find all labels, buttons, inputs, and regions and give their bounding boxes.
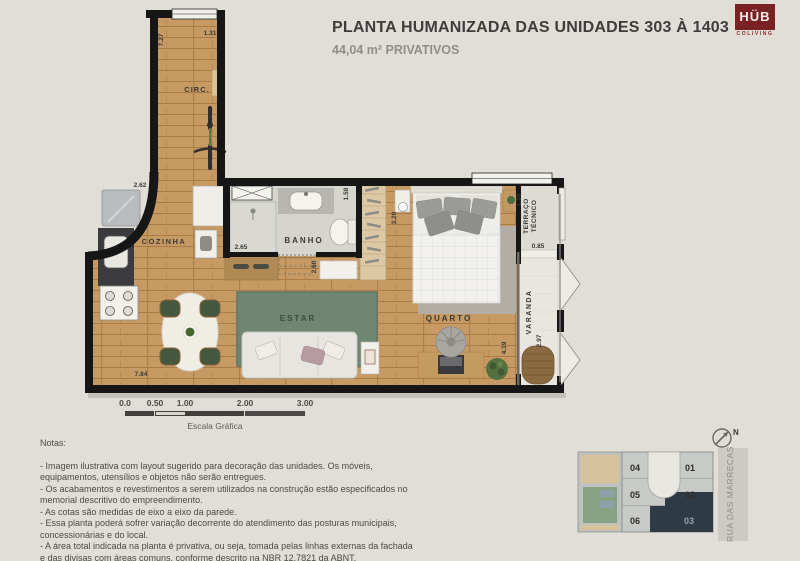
- keyplan-building: 04 01 05 02 06 03: [622, 452, 713, 532]
- bed-blanket: [413, 234, 500, 303]
- notes: Notas: - Imagem ilustrativa com layout s…: [40, 438, 418, 561]
- laptop-screen: [440, 357, 462, 366]
- keyplan-street: RUA DAS MARRECAS: [718, 446, 748, 542]
- label-terraco-2: TÉCNICO: [529, 200, 538, 233]
- terraco-left-wall: [516, 182, 521, 252]
- floor-plan: CIRC. COZINHA BANHO ESTAR QUARTO VARANDA…: [80, 4, 585, 404]
- dim-estar-depth: 2.60: [311, 260, 318, 273]
- keyplan-unit-highlighted: 03: [684, 516, 694, 526]
- circ-right-wall: [217, 10, 225, 182]
- casement-window-2: [561, 334, 580, 385]
- desk-chair: [436, 327, 466, 357]
- dim-quarto-height: 4.19: [501, 341, 508, 354]
- scale-bar-graphic: [125, 411, 305, 416]
- circ-left-wall: [150, 10, 158, 176]
- bath-right-wall: [356, 178, 362, 258]
- terraco-varanda-divider: [520, 250, 557, 258]
- note-item: - As cotas são medidas de eixo a eixo da…: [40, 507, 418, 519]
- framed-picture: [365, 350, 375, 364]
- bed-headboard: [411, 186, 502, 193]
- label-cozinha: COZINHA: [142, 237, 187, 246]
- nightstand-lamp: [399, 203, 408, 212]
- scale-bar: 0.0 0.50 1.00 2.00 3.00 Escala Gráfica: [110, 396, 325, 436]
- kitchen-cabinet: [193, 186, 224, 226]
- scale-tick: 0.50: [147, 398, 164, 408]
- label-varanda: VARANDA: [526, 290, 533, 335]
- scale-tick: 2.00: [237, 398, 254, 408]
- lounge-chair: [522, 346, 554, 384]
- page: PLANTA HUMANIZADA DAS UNIDADES 303 À 140…: [0, 0, 800, 561]
- bath-left-wall: [223, 178, 230, 258]
- note-item: - A área total indicada na planta é priv…: [40, 541, 418, 561]
- keyplan-unit: 05: [630, 490, 640, 500]
- bedroom-plant: [486, 358, 508, 380]
- keyplan-unit: 02: [685, 490, 695, 500]
- keyplan-unit: 01: [685, 463, 695, 473]
- label-quarto: QUARTO: [426, 314, 473, 323]
- keyplan-unit: 06: [630, 516, 640, 526]
- sideboard: [225, 254, 278, 280]
- keyplan-core: [648, 452, 680, 498]
- scale-tick: 1.00: [177, 398, 194, 408]
- sideboard-handle: [253, 264, 269, 269]
- dim-terraco-height: 1.20: [516, 193, 523, 206]
- stove: [100, 286, 138, 320]
- key-plan: N 04 01 05 02 06 03: [575, 424, 757, 545]
- bottom-wall: [85, 385, 564, 393]
- street-label: RUA DAS MARRECAS: [725, 446, 735, 542]
- casement-window-1: [561, 258, 580, 310]
- brand-logo-tagline: COLIVING: [735, 31, 775, 37]
- label-banho: BANHO: [284, 236, 323, 245]
- scale-segment: [155, 411, 186, 416]
- coffee-machine: [200, 236, 212, 251]
- bath-bottom-wall-left: [223, 252, 278, 257]
- notes-heading: Notas:: [40, 438, 418, 450]
- scale-segment: [185, 411, 244, 416]
- scale-tick: 0.0: [119, 398, 131, 408]
- bathroom: [230, 186, 356, 256]
- north-compass: N: [713, 428, 739, 447]
- dim-varanda-height: 2.97: [536, 334, 543, 347]
- dim-circ-height: 7.27: [158, 33, 165, 46]
- note-item: - Os acabamentos e revestimentos a serem…: [40, 484, 418, 507]
- scale-segment: [245, 411, 305, 416]
- scale-bar-caption: Escala Gráfica: [187, 421, 242, 431]
- table-plant: [186, 328, 195, 337]
- scale-segment: [125, 411, 154, 416]
- closet: [360, 182, 386, 280]
- label-terraco-1: TERRAÇO: [523, 198, 530, 234]
- dim-banho-width: 2.65: [235, 244, 248, 251]
- ottoman: [320, 261, 357, 279]
- label-estar: ESTAR: [280, 314, 317, 323]
- brand-logo-mark: HÜB: [735, 4, 775, 30]
- label-circ: CIRC.: [184, 85, 209, 94]
- bath-faucet: [304, 192, 308, 196]
- dim-cozinha-width: 2.62: [134, 182, 147, 189]
- dim-varanda-width: 0.85: [532, 243, 545, 250]
- left-wall: [85, 252, 93, 393]
- nightstand-plant: [507, 196, 515, 204]
- scale-tick: 3.00: [297, 398, 314, 408]
- dim-banho-height: 1.58: [343, 187, 350, 200]
- bath-bottom-wall-right: [316, 252, 362, 257]
- keyplan-common-area: [578, 452, 622, 532]
- toilet-tank: [348, 220, 356, 244]
- dim-circ-width: 1.31: [204, 30, 217, 37]
- varanda-glass-line: [517, 252, 520, 385]
- keyplan-unit-03-notch: [650, 506, 665, 532]
- keyplan-unit: 04: [630, 463, 640, 473]
- north-label: N: [733, 428, 739, 437]
- note-item: - Imagem ilustrativa com layout sugerido…: [40, 461, 418, 484]
- sideboard-handle: [233, 264, 249, 269]
- dim-quarto-width: 3.20: [391, 211, 398, 224]
- shower-head: [250, 208, 255, 213]
- note-item: - Essa planta poderá sofrer variação dec…: [40, 518, 418, 541]
- brand-logo: HÜB COLIVING: [735, 4, 775, 37]
- dim-total-width: 7.84: [135, 371, 148, 378]
- toilet-bowl: [330, 219, 350, 245]
